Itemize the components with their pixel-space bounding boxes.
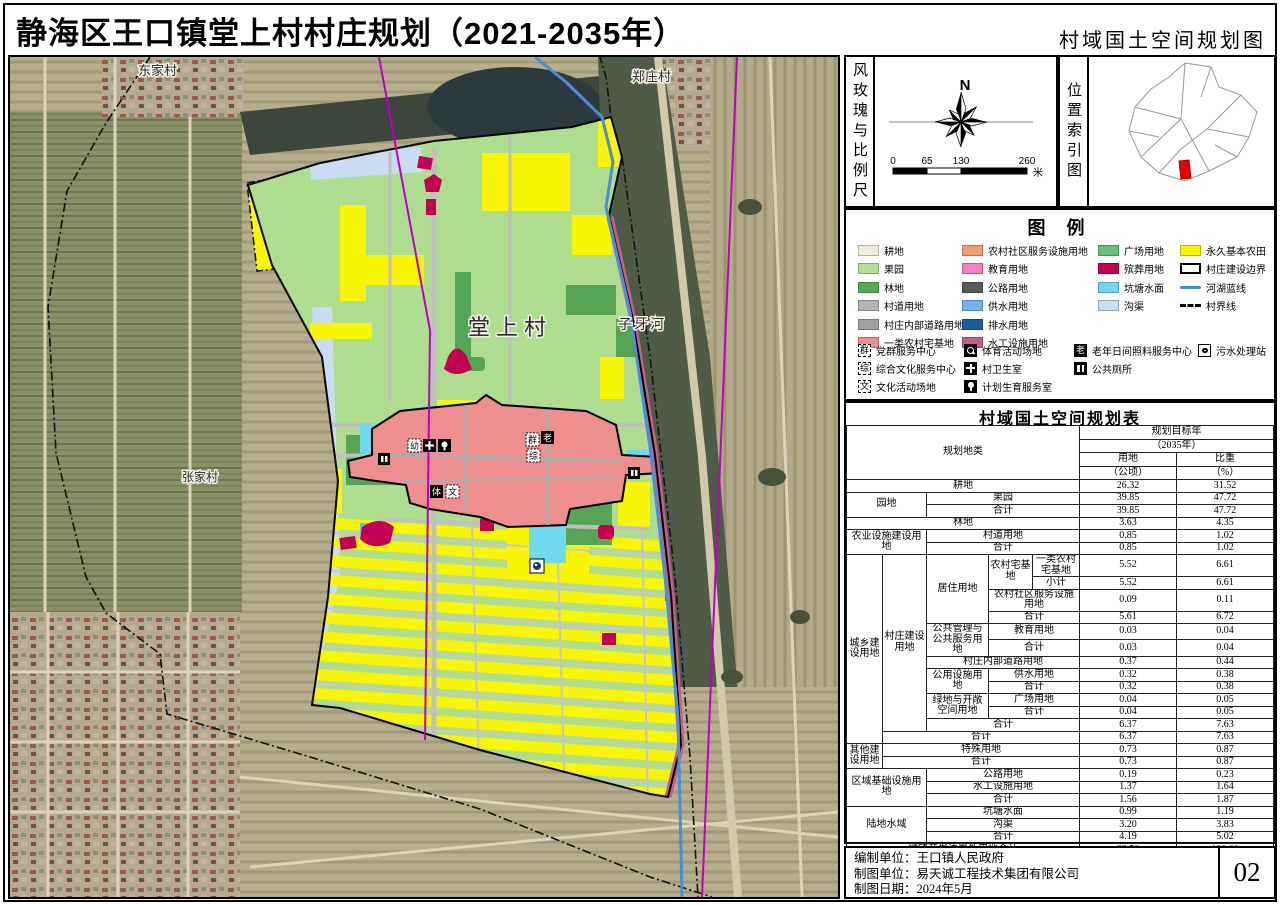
table-cell: 耕地 — [847, 480, 1080, 493]
legend-swatch — [1180, 263, 1201, 274]
legend-label: 教育用地 — [988, 261, 1028, 276]
legend-item: 林地 — [858, 281, 964, 293]
table-cell: 合计 — [989, 681, 1080, 694]
table-row: 林地3.634.35 — [847, 517, 1274, 530]
legend-item: 耕地 — [858, 244, 964, 256]
table-cell: 39.85 — [1080, 505, 1177, 518]
table-cell: 教育用地 — [989, 624, 1080, 640]
table-cell: 0.85 — [1080, 530, 1177, 543]
legend-item: 村庄内部道路用地 — [858, 318, 964, 330]
table-cell: 5.61 — [1080, 611, 1177, 624]
facility-label: 综合文化服务中心 — [876, 361, 956, 376]
public-toilet-icon — [628, 467, 640, 479]
table-cell: 小计 — [1033, 577, 1080, 590]
facility-item: 村卫生室 — [964, 361, 1052, 375]
facility-label: 文化活动场地 — [876, 379, 936, 394]
table-cell: 1.64 — [1177, 781, 1274, 794]
table-row: 城乡建设用地村庄建设用地居住用地农村宅基地一类农村宅基地5.526.61 — [847, 555, 1274, 577]
table-cell: 园地 — [847, 492, 927, 517]
table-row: 陆地水域坑塘水面0.991.19 — [847, 806, 1274, 819]
legend-swatch — [858, 282, 879, 293]
table-cell: 5.02 — [1177, 831, 1274, 844]
table-cell: 1.02 — [1177, 530, 1274, 543]
table-cell: 1.02 — [1177, 542, 1274, 555]
legend-swatch — [858, 245, 879, 256]
facility-column-1: 群党群服务中心综综合文化服务中心文文化活动场地 — [858, 343, 956, 397]
table-cell: 0.44 — [1177, 656, 1274, 669]
table-cell: 1.56 — [1080, 794, 1177, 807]
table-cell: 0.05 — [1177, 706, 1274, 719]
table-cell: 6.61 — [1177, 577, 1274, 590]
page-number: 02 — [1218, 848, 1274, 897]
legend-label: 村界线 — [1206, 298, 1236, 313]
legend-label: 农村社区服务设施用地 — [988, 243, 1088, 258]
table-cell: 1.37 — [1080, 781, 1177, 794]
legend-label: 林地 — [884, 280, 904, 295]
svg-text:群: 群 — [528, 434, 537, 445]
legend-title: 图 例 — [846, 214, 1274, 240]
legend-swatch — [1098, 300, 1119, 311]
legend-item: 村界线 — [1180, 300, 1266, 312]
legend-item: 永久基本农田 — [1180, 244, 1266, 256]
credit-label: 制图单位： — [854, 867, 917, 881]
table-cell: 3.63 — [1080, 517, 1177, 530]
elder-care-icon: 老 — [541, 431, 554, 444]
table-cell: 0.99 — [1080, 806, 1177, 819]
facility-item: 计划生育服务室 — [964, 379, 1052, 393]
location-index-label: 位置索引图 — [1060, 57, 1089, 206]
table-cell: 3.20 — [1080, 819, 1177, 832]
scale-bar: 0 65 130 260 米 — [890, 156, 1043, 179]
clinic-icon — [964, 362, 977, 375]
legend-label: 殡葬用地 — [1124, 261, 1164, 276]
table-title: 村域国土空间规划表 — [846, 405, 1274, 429]
table-cell: 0.73 — [1080, 756, 1177, 769]
table-cell: 0.73 — [1080, 744, 1177, 757]
label-ziyahe: 子牙河 — [618, 316, 666, 332]
legend-swatch — [1180, 245, 1201, 256]
table-cell: 0.11 — [1177, 589, 1274, 611]
table-cell: 合计 — [927, 719, 1080, 732]
legend-label: 广场用地 — [1124, 243, 1164, 258]
credit-line: 制图单位：易天诚工程技术集团有限公司 — [854, 867, 1212, 883]
compass-panel: 风玫瑰与比例尺 N 0 65 130 — [844, 55, 1058, 208]
table-cell: 公共管理与公共服务用地 — [927, 624, 989, 657]
legend-label: 永久基本农田 — [1206, 243, 1266, 258]
table-cell: 0.87 — [1177, 756, 1274, 769]
credit-label: 编制单位： — [854, 851, 917, 865]
facility-column-3: 老老年日间照料服务中心公共厕所 — [1074, 343, 1192, 379]
legend-label: 村庄内部道路用地 — [884, 317, 964, 332]
svg-text:130: 130 — [953, 156, 970, 167]
svg-text:体: 体 — [432, 486, 441, 497]
table-cell: 4.35 — [1177, 517, 1274, 530]
table-cell: 0.09 — [1080, 589, 1177, 611]
table-cell: 1.87 — [1177, 794, 1274, 807]
legend-swatch — [1180, 304, 1201, 307]
compass-panel-label: 风玫瑰与比例尺 — [846, 57, 875, 206]
legend-item: 村道用地 — [858, 300, 964, 312]
table-cell: 广场用地 — [989, 694, 1080, 707]
location-index-map — [1089, 57, 1272, 204]
elder-care-icon: 老 — [1074, 344, 1087, 357]
table-cell: 0.87 — [1177, 744, 1274, 757]
legend-column-1: 耕地果园林地村道用地村庄内部道路用地一类农村宅基地 — [858, 244, 964, 355]
table-cell: 1.19 — [1177, 806, 1274, 819]
village-map[interactable]: 幼 群 老 综 体 文 东家村 郑庄村 堂上村 子牙河 张家村 — [10, 57, 838, 897]
facility-label: 公共厕所 — [1092, 361, 1132, 376]
table-panel: 村域国土空间规划表 规划地类规划目标年（2035年）用地比重（公顷）（%）耕地2… — [844, 401, 1276, 844]
table-cell: 7.63 — [1177, 719, 1274, 732]
credit-label: 制图日期： — [854, 882, 917, 896]
table-cell: 0.03 — [1080, 624, 1177, 640]
svg-text:65: 65 — [921, 156, 933, 167]
table-cell: 0.32 — [1080, 669, 1177, 682]
table-cell: 村道用地 — [927, 530, 1080, 543]
svg-text:0: 0 — [890, 156, 896, 167]
sewage-station-icon — [530, 559, 544, 573]
table-cell: 47.72 — [1177, 505, 1274, 518]
table-cell: 5.52 — [1080, 577, 1177, 590]
table-cell: 陆地水域 — [847, 806, 927, 844]
table-cell: 3.83 — [1177, 819, 1274, 832]
table-cell: 0.04 — [1080, 706, 1177, 719]
credit-value: 2024年5月 — [917, 882, 973, 896]
legend-item: 教育用地 — [962, 263, 1088, 275]
table-cell: 0.38 — [1177, 681, 1274, 694]
table-cell: 农业设施建设用地 — [847, 530, 927, 555]
legend-item: 排水用地 — [962, 318, 1088, 330]
table-header-cell: 规划地类 — [847, 426, 1080, 480]
facility-label: 体育活动场地 — [982, 343, 1042, 358]
family-planning-icon — [438, 439, 451, 452]
table-cell: 公用设施用地 — [927, 669, 989, 694]
north-label: N — [960, 77, 971, 94]
table-header-cell: （%） — [1177, 466, 1274, 480]
table-row: 合计6.377.63 — [847, 731, 1274, 744]
kindergarten-icon: 幼 — [408, 439, 421, 452]
table-cell: 0.37 — [1080, 656, 1177, 669]
page-title: 静海区王口镇堂上村村庄规划（2021-2035年） — [16, 8, 685, 53]
legend-label: 坑塘水面 — [1124, 280, 1164, 295]
table-cell: 区域基础设施用地 — [847, 769, 927, 807]
table-cell: 合计 — [883, 731, 1080, 744]
table-row: 合计0.730.87 — [847, 756, 1274, 769]
credit-line: 编制单位：王口镇人民政府 — [854, 851, 1212, 867]
svg-text:老: 老 — [543, 432, 552, 443]
public-toilet-icon — [1074, 362, 1087, 375]
table-cell: 6.61 — [1177, 555, 1274, 577]
table-cell: 合计 — [927, 831, 1080, 844]
svg-text:综: 综 — [529, 450, 538, 461]
table-cell: 供水用地 — [989, 669, 1080, 682]
facility-item: 综综合文化服务中心 — [858, 361, 956, 375]
legend-swatch — [962, 263, 983, 274]
table-cell: 果园 — [927, 492, 1080, 505]
facility-label: 村卫生室 — [982, 361, 1022, 376]
legend-item: 殡葬用地 — [1098, 263, 1164, 275]
table-cell: 合计 — [883, 756, 1080, 769]
facility-item: 老老年日间照料服务中心 — [1074, 343, 1192, 357]
culture-ground-icon: 文 — [446, 485, 459, 498]
legend-item: 坑塘水面 — [1098, 281, 1164, 293]
table-cell: 合计 — [989, 640, 1080, 656]
facility-item: 文文化活动场地 — [858, 379, 956, 393]
legend-swatch — [1098, 282, 1119, 293]
credit-value: 易天诚工程技术集团有限公司 — [917, 867, 1080, 881]
table-cell: 47.72 — [1177, 492, 1274, 505]
label-zhengzhuangcun: 郑庄村 — [632, 69, 671, 84]
table-cell: 合计 — [989, 706, 1080, 719]
sports-ground-icon: 体 — [430, 485, 443, 498]
table-cell: 5.52 — [1080, 555, 1177, 577]
facility-item: 体育活动场地 — [964, 343, 1052, 357]
facility-item: 公共厕所 — [1074, 361, 1192, 375]
culture-service-icon: 综 — [858, 362, 871, 375]
table-cell: 合计 — [989, 611, 1080, 624]
table-cell: 一类农村宅基地 — [1033, 555, 1080, 577]
legend-swatch — [1180, 286, 1201, 289]
table-header-cell: （公顷） — [1080, 466, 1177, 480]
svg-text:米: 米 — [1033, 166, 1043, 179]
table-cell: 合计 — [927, 794, 1080, 807]
page-subtitle: 村域国土空间规划图 — [1059, 24, 1266, 53]
legend-swatch — [962, 300, 983, 311]
culture-service-icon: 综 — [527, 449, 540, 462]
legend-item: 河湖蓝线 — [1180, 281, 1266, 293]
table-header-cell: 用地 — [1080, 453, 1177, 467]
table-header-cell: 比重 — [1177, 453, 1274, 467]
legend-swatch — [858, 263, 879, 274]
table-cell: 6.72 — [1177, 611, 1274, 624]
legend-label: 耕地 — [884, 243, 904, 258]
legend-column-3: 广场用地殡葬用地坑塘水面沟渠 — [1098, 244, 1164, 318]
legend-panel: 图 例 耕地果园林地村道用地村庄内部道路用地一类农村宅基地 农村社区服务设施用地… — [844, 208, 1276, 401]
table-row: 区域基础设施用地公路用地0.190.23 — [847, 769, 1274, 782]
table-cell: 居住用地 — [927, 555, 989, 624]
legend-swatch — [858, 319, 879, 330]
table-cell: 特殊用地 — [883, 744, 1080, 757]
plan-table-body: 规划地类规划目标年（2035年）用地比重（公顷）（%）耕地26.3231.52园… — [847, 426, 1274, 869]
sewage-station-icon — [1198, 344, 1211, 357]
facility-item: 群党群服务中心 — [858, 343, 956, 357]
table-row: 园地果园39.8547.72 — [847, 492, 1274, 505]
table-cell: 合计 — [927, 542, 1080, 555]
family-planning-icon — [964, 380, 977, 393]
plan-sheet: 静海区王口镇堂上村村庄规划（2021-2035年） 村域国土空间规划图 — [0, 0, 1280, 905]
table-cell: 农村社区服务设施用地 — [989, 589, 1080, 611]
credit-value: 王口镇人民政府 — [917, 851, 1005, 865]
svg-text:文: 文 — [448, 486, 457, 497]
legend-swatch — [1098, 263, 1119, 274]
svg-text:幼: 幼 — [410, 440, 419, 451]
table-cell: 合计 — [927, 505, 1080, 518]
svg-text:260: 260 — [1019, 156, 1036, 167]
legend-label: 村道用地 — [884, 298, 924, 313]
legend-item: 公路用地 — [962, 281, 1088, 293]
table-cell: 其他建设用地 — [847, 744, 883, 769]
legend-item: 果园 — [858, 263, 964, 275]
sports-ground-icon — [964, 344, 977, 357]
table-cell: 0.19 — [1080, 769, 1177, 782]
table-header-cell: （2035年） — [1080, 439, 1274, 453]
legend-label: 沟渠 — [1124, 298, 1144, 313]
credit-line: 制图日期：2024年5月 — [854, 882, 1212, 898]
legend-item: 沟渠 — [1098, 300, 1164, 312]
table-cell: 0.38 — [1177, 669, 1274, 682]
table-cell: 0.03 — [1080, 640, 1177, 656]
label-dongjiacun: 东家村 — [138, 63, 177, 78]
table-cell: 31.52 — [1177, 480, 1274, 493]
plan-table: 规划地类规划目标年（2035年）用地比重（公顷）（%）耕地26.3231.52园… — [846, 425, 1274, 869]
clinic-icon — [423, 439, 436, 452]
table-cell: 沟渠 — [927, 819, 1080, 832]
party-service-icon: 群 — [858, 344, 871, 357]
wind-rose: N 0 65 130 260 — [875, 57, 1055, 205]
legend-swatch — [1098, 245, 1119, 256]
location-index-panel: 位置索引图 — [1058, 55, 1276, 208]
highlighted-village — [1179, 160, 1191, 179]
table-cell: 农村宅基地 — [989, 555, 1033, 590]
table-cell: 39.85 — [1080, 492, 1177, 505]
table-cell: 村庄内部道路用地 — [927, 656, 1080, 669]
legend-label: 果园 — [884, 261, 904, 276]
map-panel[interactable]: 幼 群 老 综 体 文 东家村 郑庄村 堂上村 子牙河 张家村 — [8, 55, 840, 899]
legend-label: 河湖蓝线 — [1206, 280, 1246, 295]
facility-item: 污水处理站 — [1198, 343, 1266, 357]
table-cell: 绿地与开敞空间用地 — [927, 694, 989, 719]
culture-ground-icon: 文 — [858, 380, 871, 393]
table-cell: 0.32 — [1080, 681, 1177, 694]
table-cell: 城乡建设用地 — [847, 555, 883, 744]
legend-label: 排水用地 — [988, 317, 1028, 332]
table-cell: 林地 — [847, 517, 1080, 530]
party-service-icon: 群 — [526, 433, 539, 446]
table-cell: 坑塘水面 — [927, 806, 1080, 819]
table-cell: 0.23 — [1177, 769, 1274, 782]
legend-label: 供水用地 — [988, 298, 1028, 313]
facility-label: 党群服务中心 — [876, 343, 936, 358]
table-cell: 0.04 — [1177, 624, 1274, 640]
facility-label: 计划生育服务室 — [982, 379, 1052, 394]
facility-label: 老年日间照料服务中心 — [1092, 343, 1192, 358]
legend-item: 农村社区服务设施用地 — [962, 244, 1088, 256]
facility-column-2: 体育活动场地村卫生室计划生育服务室 — [964, 343, 1052, 397]
table-cell: 0.05 — [1177, 694, 1274, 707]
table-cell: 村庄建设用地 — [883, 555, 927, 732]
legend-column-2: 农村社区服务设施用地教育用地公路用地供水用地排水用地水工设施用地 — [962, 244, 1088, 355]
table-cell: 6.37 — [1080, 719, 1177, 732]
table-row: 耕地26.3231.52 — [847, 480, 1274, 493]
table-cell: 6.37 — [1080, 731, 1177, 744]
legend-item: 广场用地 — [1098, 244, 1164, 256]
legend-swatch — [858, 300, 879, 311]
table-row: 其他建设用地特殊用地0.730.87 — [847, 744, 1274, 757]
public-toilet-icon — [378, 453, 390, 465]
table-cell: 0.04 — [1177, 640, 1274, 656]
legend-label: 公路用地 — [988, 280, 1028, 295]
legend-column-4: 永久基本农田村庄建设边界河湖蓝线村界线 — [1180, 244, 1266, 318]
credits-panel: 编制单位：王口镇人民政府 制图单位：易天诚工程技术集团有限公司 制图日期：202… — [844, 846, 1276, 899]
label-tangshangcun: 堂上村 — [468, 315, 552, 340]
table-cell: 0.85 — [1080, 542, 1177, 555]
legend-swatch — [962, 245, 983, 256]
label-zhangjiacun: 张家村 — [182, 469, 218, 484]
facility-label: 污水处理站 — [1216, 343, 1266, 358]
table-cell: 公路用地 — [927, 769, 1080, 782]
facility-column-4: 污水处理站 — [1198, 343, 1266, 361]
table-cell: 26.32 — [1080, 480, 1177, 493]
legend-swatch — [962, 319, 983, 330]
table-cell: 7.63 — [1177, 731, 1274, 744]
legend-item: 供水用地 — [962, 300, 1088, 312]
legend-label: 村庄建设边界 — [1206, 261, 1266, 276]
table-cell: 水工设施用地 — [927, 781, 1080, 794]
table-cell: 0.04 — [1080, 694, 1177, 707]
legend-swatch — [962, 282, 983, 293]
table-row: 农业设施建设用地村道用地0.851.02 — [847, 530, 1274, 543]
legend-item: 村庄建设边界 — [1180, 263, 1266, 275]
table-cell: 4.19 — [1080, 831, 1177, 844]
